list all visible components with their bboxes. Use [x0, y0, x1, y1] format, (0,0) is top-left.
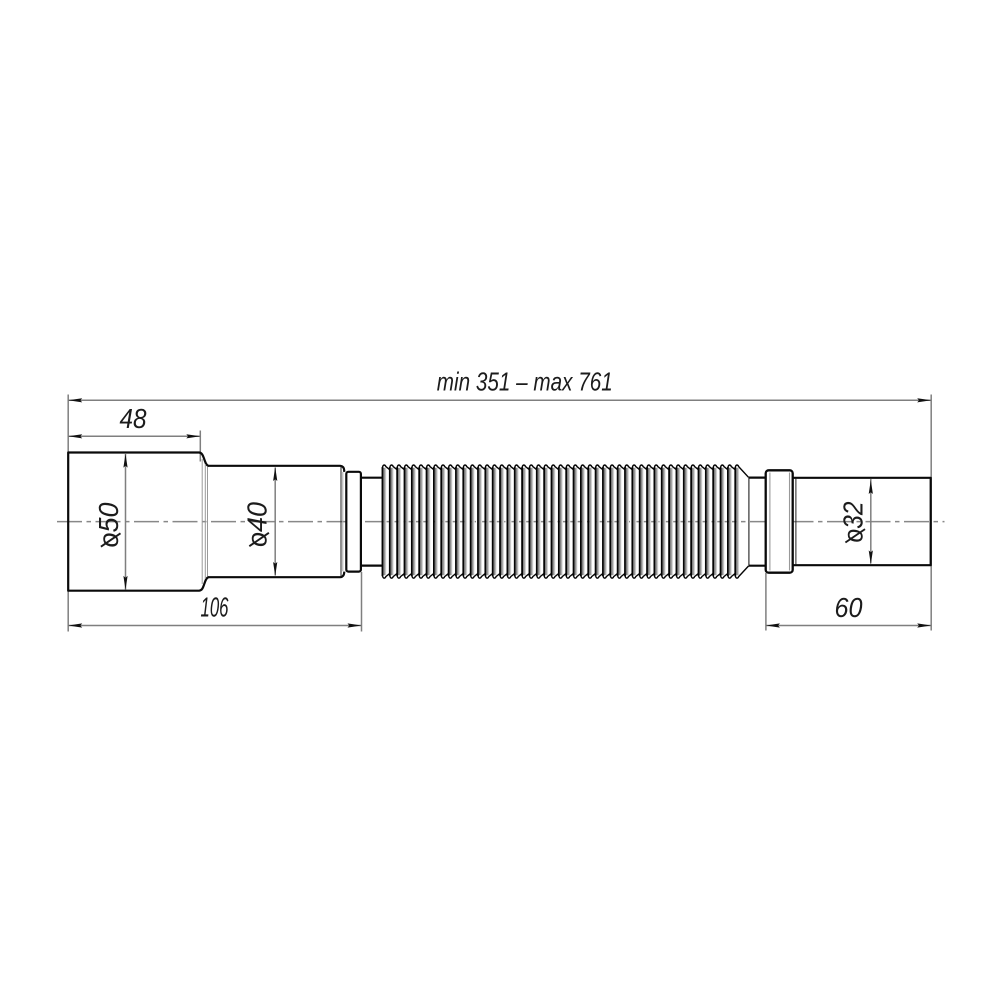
svg-text:48: 48: [120, 403, 147, 434]
svg-text:min 351 – max 761: min 351 – max 761: [437, 367, 613, 397]
svg-text:106: 106: [201, 592, 229, 623]
svg-text:60: 60: [835, 592, 863, 623]
